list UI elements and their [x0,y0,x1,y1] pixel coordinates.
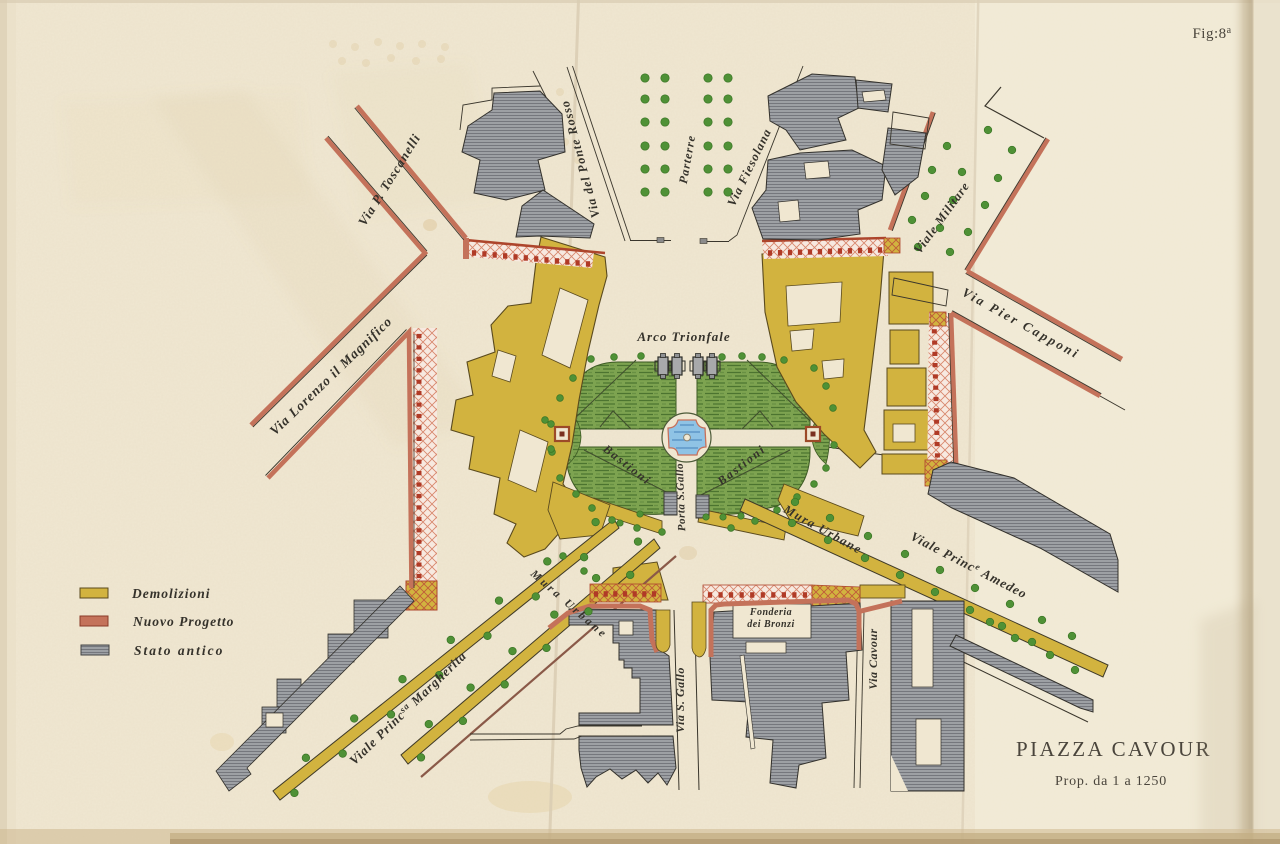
svg-text:Nuovo Progetto: Nuovo Progetto [132,614,234,629]
svg-text:Via S. Gallo: Via S. Gallo [673,667,687,733]
svg-text:PIAZZA CAVOUR: PIAZZA CAVOUR [1016,737,1212,761]
svg-text:Stato antico: Stato antico [134,643,224,658]
svg-text:Prop. da 1 a 1250: Prop. da 1 a 1250 [1055,774,1167,789]
svg-text:Via Cavour: Via Cavour [866,628,880,689]
svg-text:Fig:8a: Fig:8a [1192,25,1231,42]
svg-text:Arco Trionfale: Arco Trionfale [636,329,730,344]
svg-text:Demolizioni: Demolizioni [131,586,211,601]
svg-text:Porta S.Gallo: Porta S.Gallo [674,463,688,532]
svg-text:Fonderia: Fonderia [749,607,792,618]
svg-text:dei Bronzi: dei Bronzi [747,619,795,630]
